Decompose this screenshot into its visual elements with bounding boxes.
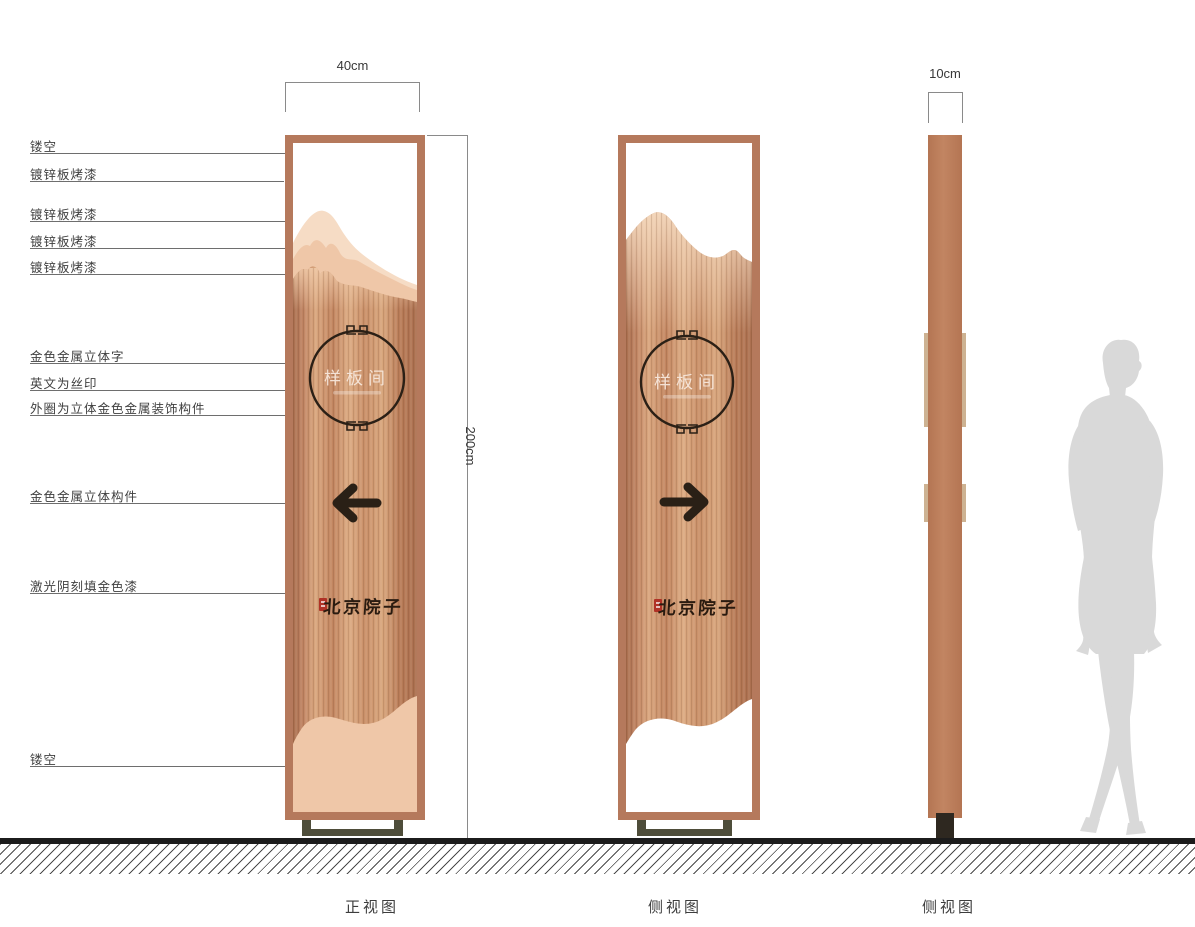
dimension-line [928, 92, 963, 93]
dimension-tick [427, 135, 467, 136]
ground-hatch [0, 844, 1195, 874]
brand-calligraphy: 北京院子 [654, 598, 739, 618]
dimension-front-width: 40cm [330, 58, 375, 73]
silkscreen-english-strip [333, 391, 381, 395]
callout-line [30, 248, 295, 249]
brand-name-text: 北京院子 [657, 598, 738, 618]
brand-name-text: 北京院子 [322, 597, 403, 617]
human-silhouette [1040, 335, 1180, 840]
silkscreen-english-strip [663, 395, 711, 399]
callout-line [30, 415, 317, 416]
profile-column [928, 135, 962, 818]
dimension-line [467, 135, 468, 838]
callout-line [30, 181, 284, 182]
callout-line [30, 221, 322, 222]
front-base-bar [302, 829, 403, 836]
view-label-front: 正视图 [327, 896, 417, 917]
second-sign-panel: 样板间 北京院子 [626, 143, 752, 812]
dimension-total-height: 200cm [462, 423, 478, 469]
second-base-bar [637, 829, 732, 836]
brand-calligraphy: 北京院子 [319, 597, 404, 617]
dimension-tick [419, 82, 420, 112]
profile-foot [936, 813, 954, 839]
view-label-side-1: 侧视图 [630, 896, 720, 917]
callout-line [30, 274, 293, 275]
callout-line [30, 153, 307, 154]
front-sign-panel: 样板间 北京院子 [293, 143, 417, 812]
dimension-tick [285, 82, 286, 112]
drawing-canvas: 镂空 镀锌板烤漆 镀锌板烤漆 镀锌板烤漆 镀锌板烤漆 金色金属立体字 英文为丝印… [0, 0, 1195, 927]
room-name-text: 样板间 [324, 369, 390, 388]
callout-line [30, 766, 301, 767]
dimension-line [285, 82, 420, 83]
dimension-tick [962, 92, 963, 123]
callout-line [30, 593, 288, 594]
dimension-tick [928, 92, 929, 123]
view-label-side-2: 侧视图 [904, 896, 994, 917]
second-sign-artwork: 样板间 北京院子 [626, 143, 752, 812]
dimension-side-depth: 10cm [920, 66, 970, 81]
front-sign-artwork: 样板间 北京院子 [293, 143, 417, 812]
room-name-text: 样板间 [654, 373, 720, 392]
